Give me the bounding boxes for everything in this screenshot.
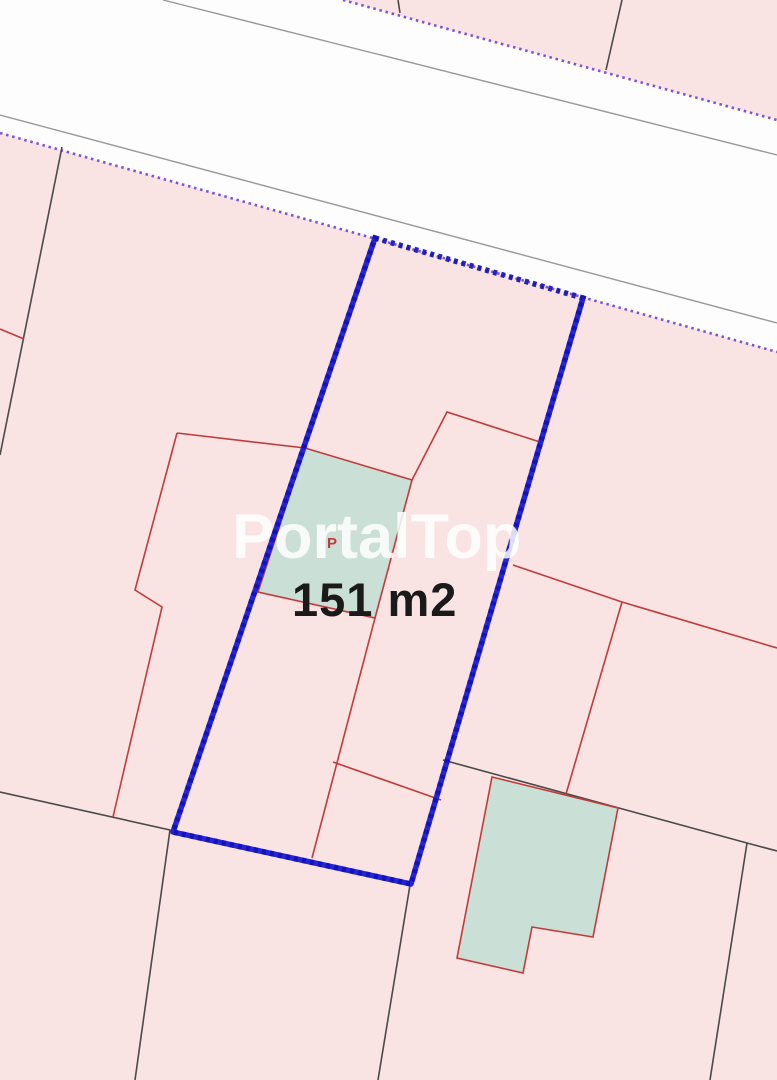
map-canvas: P PortalTop 151 m2 <box>0 0 777 1080</box>
cadastral-map: P PortalTop 151 m2 <box>0 0 777 1080</box>
parcel-area-label: 151 m2 <box>292 573 457 626</box>
watermark: PortalTop <box>232 502 521 572</box>
